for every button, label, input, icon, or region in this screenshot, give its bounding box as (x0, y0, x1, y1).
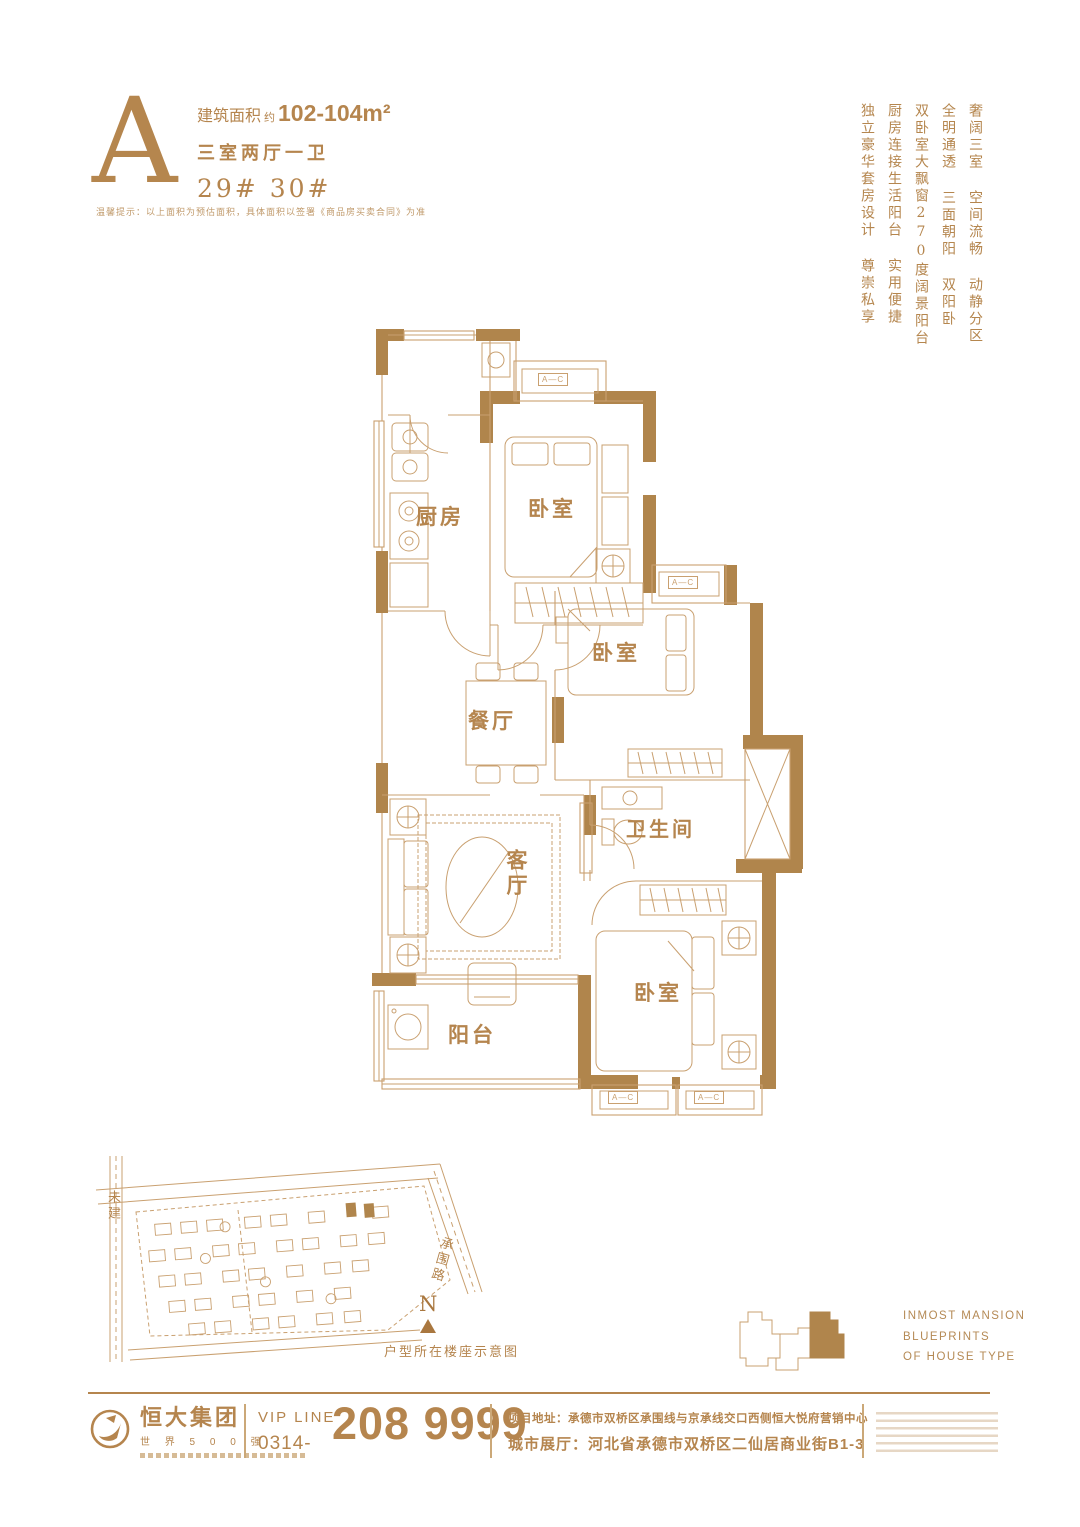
north-arrow-icon (420, 1319, 436, 1333)
compass: N (419, 1294, 437, 1333)
poster-canvas: A 建筑面积 约 102-104m² 三室两厅一卫 29# 30# 温馨提示：以… (0, 0, 1080, 1527)
floorplan: 厨房 卧室 餐厅 卧室 卫生间 客厅 阳台 卧室 A—C A—C A—C A—C (330, 325, 980, 1140)
area-line: 建筑面积 约 102-104m² (197, 100, 391, 127)
footer-divider-3 (862, 1404, 864, 1458)
room-label-bedroom3: 卧室 (634, 977, 682, 1007)
floorplan-svg (330, 325, 980, 1140)
area-approx-prefix: 约 (264, 109, 275, 125)
inmost-line-3: OF HOUSE TYPE (903, 1347, 1025, 1368)
window-code-3: A—C (608, 1091, 638, 1104)
room-label-bedroom2: 卧室 (592, 637, 640, 667)
inmost-caption: INMOST MANSION BLUEPRINTS OF HOUSE TYPE (903, 1306, 1025, 1368)
vip-phone-number: 208 9999 (332, 1398, 528, 1450)
kitchen-fixtures (390, 343, 510, 607)
room-label-dining: 餐厅 (468, 705, 516, 735)
site-plan-svg (88, 1152, 488, 1367)
layout-text: 三室两厅一卫 (197, 139, 391, 165)
evergrande-logo-icon (86, 1406, 134, 1456)
room-label-living: 客厅 (500, 849, 530, 899)
footer-divider-2 (490, 1404, 492, 1458)
bedroom2-furniture (556, 609, 722, 777)
room-label-bathroom: 卫生间 (626, 813, 695, 842)
window-code-1: A—C (538, 373, 568, 386)
building-key-plan (732, 1300, 862, 1385)
compass-n-label: N (419, 1294, 437, 1315)
site-buildings (147, 1206, 397, 1338)
vip-line-label: VIP LINE (258, 1409, 335, 1426)
inmost-line-1: INMOST MANSION (903, 1306, 1025, 1327)
site-plan (88, 1152, 488, 1367)
area-value: 102-104m² (278, 100, 391, 127)
showroom-address: 城市展厅：河北省承德市双桥区二仙居商业街B1-3 (508, 1433, 868, 1454)
room-label-kitchen: 厨房 (416, 501, 464, 531)
keyplan-svg (732, 1300, 862, 1380)
bedroom1-furniture (505, 437, 643, 623)
keyplan-highlight (810, 1312, 844, 1358)
legal-fineprint-block (876, 1412, 998, 1456)
room-label-bedroom1: 卧室 (528, 493, 576, 523)
sitemap-caption: 户型所在楼座示意图 (384, 1341, 519, 1360)
unit-type-letter: A (92, 82, 177, 200)
address-block: 项目地址：承德市双桥区承围线与京承线交口西侧恒大悦府营销中心 城市展厅：河北省承… (508, 1410, 868, 1454)
header-info: 建筑面积 约 102-104m² 三室两厅一卫 29# 30# (197, 100, 391, 203)
window-code-4: A—C (694, 1091, 724, 1104)
area-label: 建筑面积 (197, 102, 261, 126)
window-code-2: A—C (668, 576, 698, 589)
project-address: 项目地址：承德市双桥区承围线与京承线交口西侧恒大悦府营销中心 (508, 1410, 868, 1426)
disclaimer-text: 温馨提示：以上面积为预估面积，具体面积以签署《商品房买卖合同》为准 (96, 205, 426, 218)
building-numbers: 29# 30# (197, 174, 391, 203)
vip-block: VIP LINE 0314- (258, 1409, 335, 1455)
footer-rule (88, 1392, 990, 1394)
sitemap-unbuilt-label: 未建 (104, 1190, 123, 1222)
balcony-fixtures (388, 1005, 428, 1049)
footer-divider-1 (244, 1404, 246, 1458)
vip-phone-prefix: 0314- (258, 1433, 335, 1455)
room-label-balcony: 阳台 (448, 1019, 496, 1049)
inmost-line-2: BLUEPRINTS (903, 1327, 1025, 1348)
site-highlight-buildings (346, 1201, 375, 1219)
